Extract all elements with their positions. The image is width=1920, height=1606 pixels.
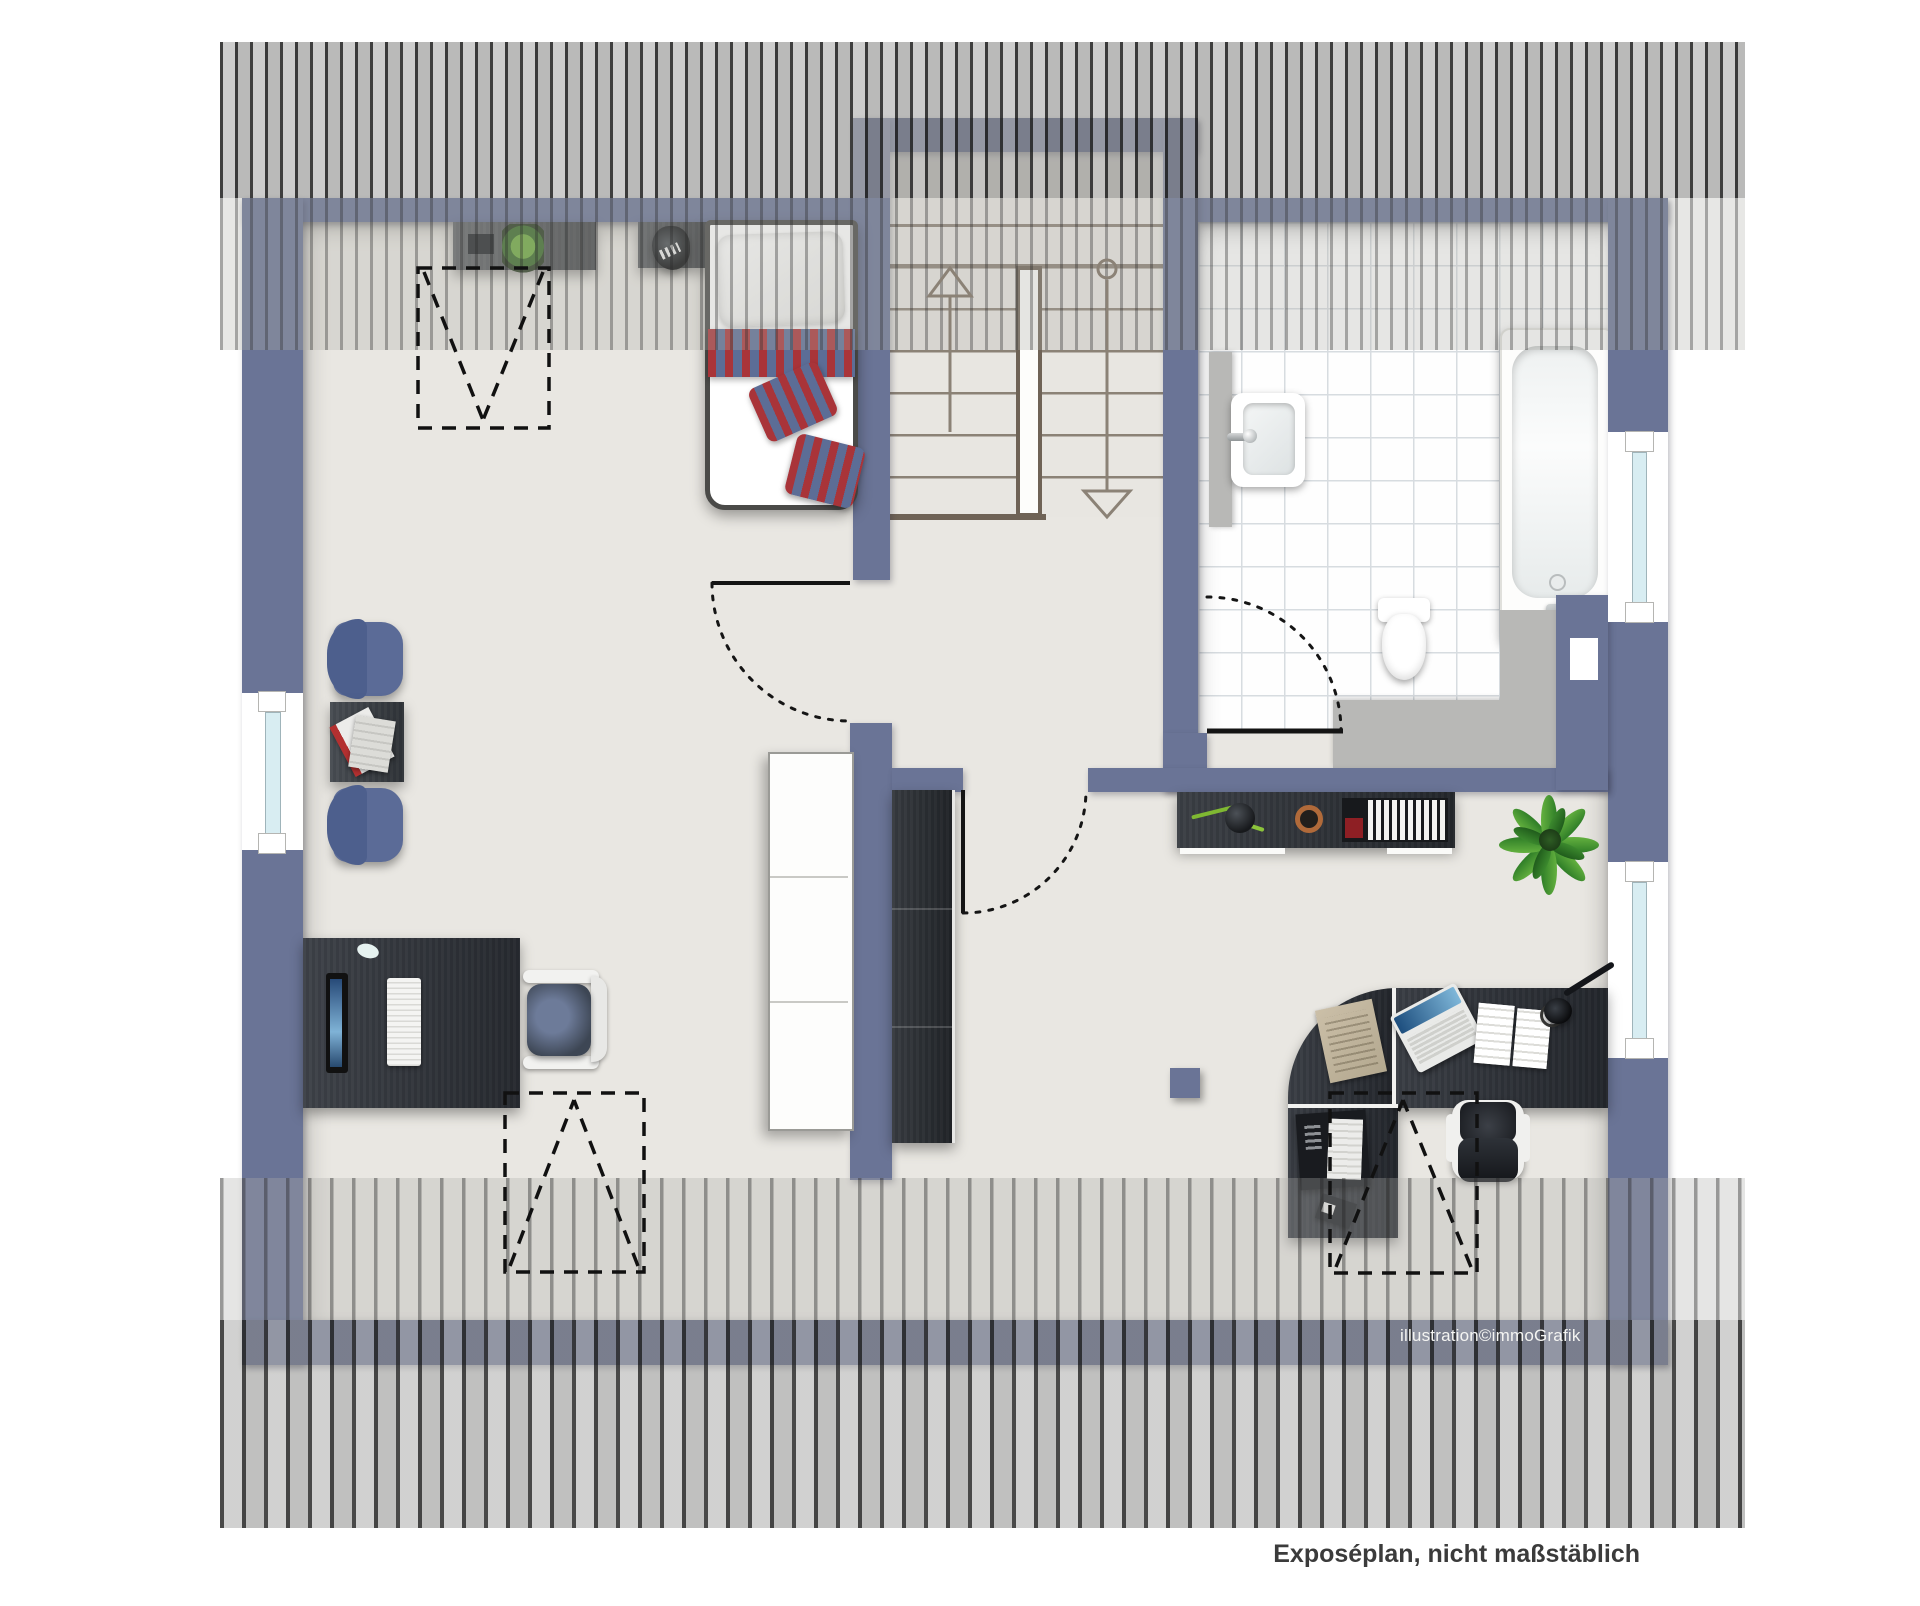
plant-center xyxy=(1539,829,1561,851)
armchair-top-back xyxy=(327,619,367,699)
window-west-glass xyxy=(265,712,281,836)
wardrobe-white-divider-1 xyxy=(770,876,848,878)
magazine-2 xyxy=(348,715,396,773)
sideboard-vase xyxy=(1225,803,1255,833)
letter-tray-lines xyxy=(1324,1009,1379,1073)
corner-desk-seam-v xyxy=(1392,988,1396,1108)
desk-papers xyxy=(1473,1003,1554,1071)
printer-paper xyxy=(1327,1119,1363,1180)
sideboard-bowl xyxy=(1295,805,1323,833)
window-west-frame-top xyxy=(258,691,286,712)
window-bath-frame-bottom xyxy=(1625,602,1654,623)
desk-chair-back xyxy=(591,976,607,1062)
sink-faucet-knob xyxy=(1243,429,1257,443)
bath-platform xyxy=(1333,700,1556,768)
potted-plant xyxy=(1505,797,1601,893)
desk-chair xyxy=(515,968,607,1072)
desk-monitor xyxy=(326,973,348,1073)
desk-lamp-head xyxy=(1544,998,1572,1024)
scale-disclaimer: Exposéplan, nicht maßstäblich xyxy=(1270,1540,1640,1569)
bathroom-door-threshold xyxy=(1207,733,1343,768)
bath-platform-side xyxy=(1500,610,1556,702)
printer-buttons xyxy=(1304,1123,1322,1150)
desk-monitor-screen xyxy=(330,979,342,1067)
armchair-top xyxy=(333,622,403,696)
roof-overhang-bottom xyxy=(220,1178,1745,1320)
study-chair-arm-right xyxy=(1520,1114,1530,1162)
hall-south-wall xyxy=(1088,768,1608,792)
study-sideboard xyxy=(1177,792,1455,848)
armchair-bottom-back xyxy=(327,785,367,865)
study-chair-seat xyxy=(1458,1138,1518,1182)
window-west-frame-bottom xyxy=(258,833,286,854)
stool-cube xyxy=(1170,1068,1200,1098)
bathtub-basin xyxy=(1512,346,1598,598)
corner-desk-seam-h xyxy=(1288,1104,1398,1108)
computer-desk xyxy=(303,938,520,1108)
armchair-bottom xyxy=(333,788,403,862)
roof-band-top xyxy=(220,42,1745,198)
window-study-frame-top xyxy=(1625,861,1654,882)
side-table xyxy=(330,702,404,782)
center-wall xyxy=(850,723,892,1180)
toilet-bowl xyxy=(1382,614,1426,680)
roof-band-bottom xyxy=(220,1320,1745,1528)
sideboard-sill-left xyxy=(1180,848,1285,854)
window-bath-glass xyxy=(1632,452,1647,604)
sink xyxy=(1231,393,1305,487)
center-wall-arm xyxy=(892,768,963,792)
desk-chair-seat xyxy=(527,984,591,1056)
wardrobe-dark-divider-2 xyxy=(892,1026,952,1028)
desk-chair-arm-top xyxy=(523,970,599,983)
bath-corner-block xyxy=(1556,595,1608,790)
desk-mouse xyxy=(356,941,381,960)
stair-bottom-trim xyxy=(888,514,1046,520)
wardrobe-white-divider-2 xyxy=(770,1001,848,1003)
toilet xyxy=(1376,598,1432,682)
study-office-chair xyxy=(1448,1098,1528,1190)
window-study-frame-bottom xyxy=(1625,1038,1654,1059)
wardrobe-white xyxy=(768,752,854,1131)
window-study-glass xyxy=(1632,882,1647,1040)
study-chair-arm-left xyxy=(1446,1114,1456,1162)
sideboard-books-accent xyxy=(1345,818,1363,838)
floor-plan-page: illustration©immoGrafik Exposéplan, nich… xyxy=(0,0,1920,1606)
wardrobe-dark-divider-1 xyxy=(892,908,952,910)
sideboard-sill-right xyxy=(1387,848,1452,854)
wardrobe-dark xyxy=(892,790,955,1143)
roof-overhang-top xyxy=(220,198,1745,350)
illustration-credit: illustration©immoGrafik xyxy=(1400,1326,1570,1346)
bath-corner-niche xyxy=(1570,638,1598,680)
window-bath-frame-top xyxy=(1625,431,1654,452)
desk-chair-arm-bottom xyxy=(523,1056,599,1069)
desk-keyboard xyxy=(387,978,421,1066)
sideboard-book-spines xyxy=(1368,800,1446,840)
sideboard-books xyxy=(1342,798,1448,842)
bathtub-drain xyxy=(1549,574,1566,591)
paper-left xyxy=(1474,1003,1515,1066)
study-chair-back xyxy=(1460,1102,1516,1142)
bed-cushion-2 xyxy=(784,432,867,509)
